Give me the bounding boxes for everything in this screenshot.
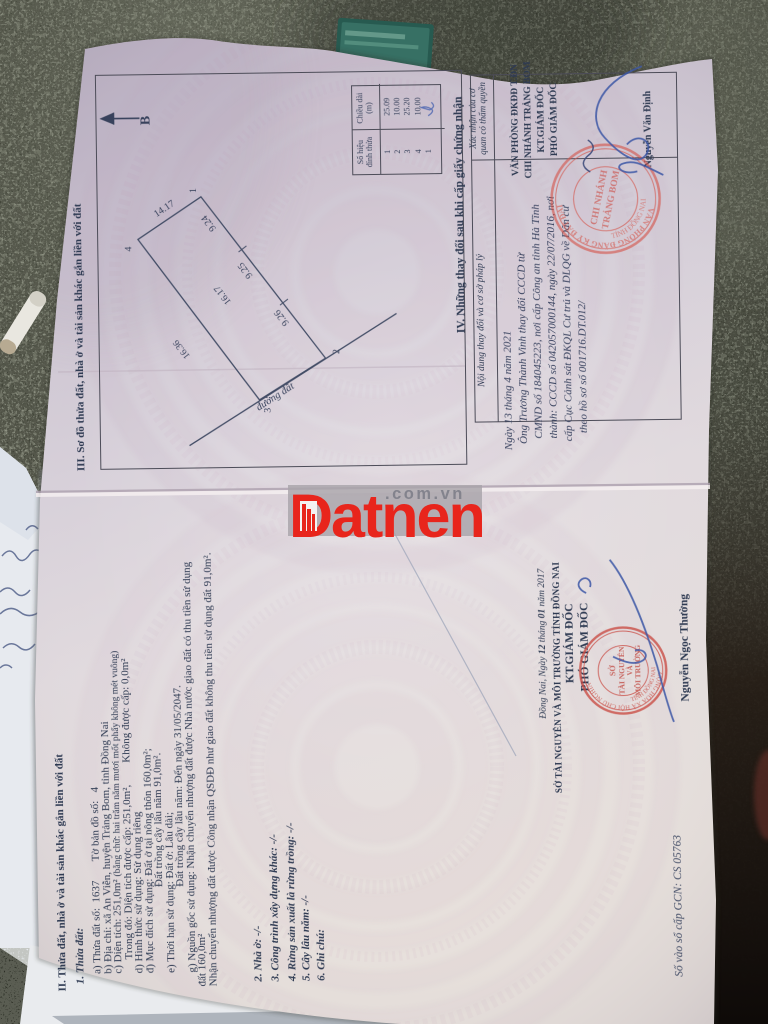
- svg-text:14.17: 14.17: [152, 198, 177, 220]
- svg-text:4: 4: [123, 246, 134, 251]
- svg-text:16.17: 16.17: [213, 283, 234, 306]
- svg-text:2: 2: [331, 349, 342, 354]
- svg-text:đường đất: đường đất: [254, 380, 297, 413]
- svg-text:16.36: 16.36: [172, 337, 193, 360]
- svg-text:1: 1: [188, 188, 199, 193]
